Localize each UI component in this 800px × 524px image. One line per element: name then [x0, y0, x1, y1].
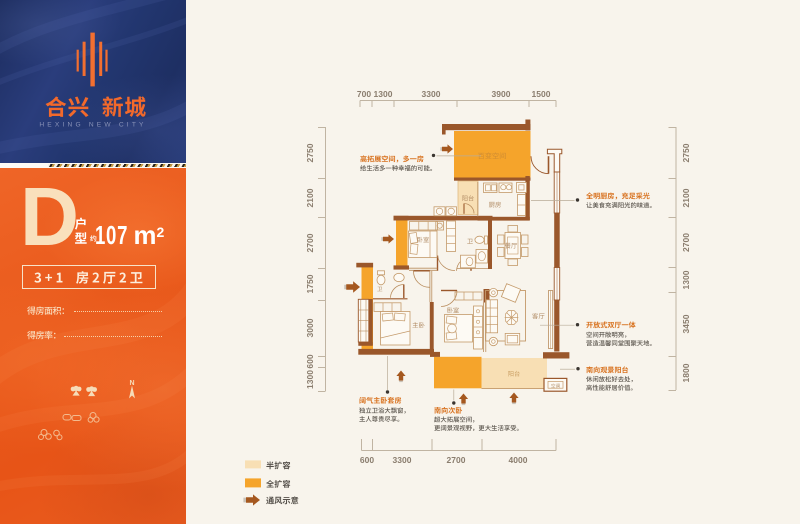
svg-text:2750: 2750 [681, 143, 691, 162]
svg-text:1750: 1750 [305, 274, 315, 293]
svg-text:2700: 2700 [305, 233, 315, 252]
svg-text:2100: 2100 [305, 188, 315, 207]
svg-text:700: 700 [357, 89, 371, 99]
svg-text:3450: 3450 [681, 314, 691, 333]
svg-text:3900: 3900 [492, 89, 511, 99]
svg-text:3300: 3300 [422, 89, 441, 99]
svg-text:1300: 1300 [374, 89, 393, 99]
svg-text:600: 600 [305, 354, 315, 368]
svg-text:1800: 1800 [681, 363, 691, 382]
svg-text:4000: 4000 [509, 455, 528, 465]
svg-text:1300: 1300 [305, 370, 315, 389]
svg-text:2750: 2750 [305, 143, 315, 162]
svg-text:1300: 1300 [681, 270, 691, 289]
svg-text:2100: 2100 [681, 188, 691, 207]
svg-text:600: 600 [360, 455, 374, 465]
svg-text:2700: 2700 [447, 455, 466, 465]
svg-text:3300: 3300 [393, 455, 412, 465]
svg-text:1500: 1500 [532, 89, 551, 99]
svg-text:2700: 2700 [681, 233, 691, 252]
svg-text:3000: 3000 [305, 318, 315, 337]
